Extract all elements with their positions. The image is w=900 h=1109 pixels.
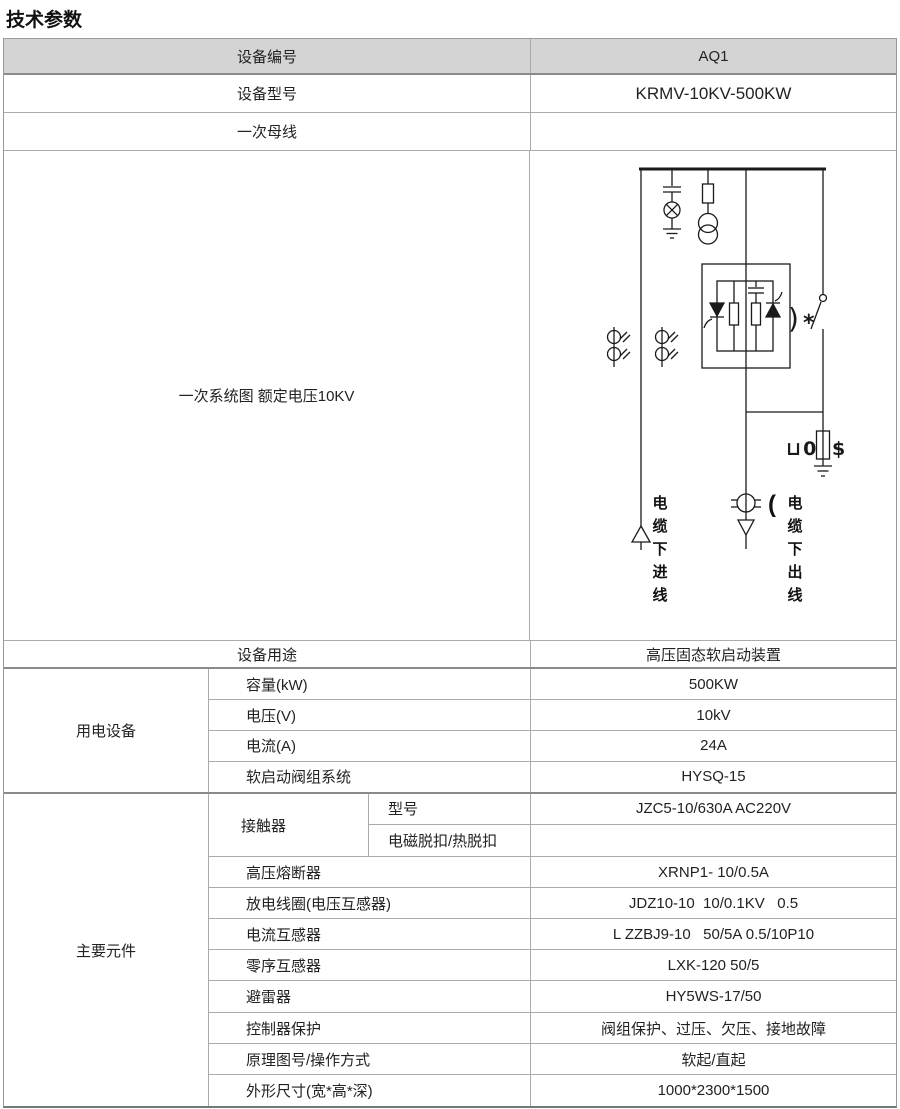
- ground-icon: [814, 466, 832, 476]
- row-value: 高压固态软启动装置: [531, 641, 896, 667]
- row-label: 一次母线: [4, 113, 531, 150]
- row-label: 电流(A): [209, 731, 531, 761]
- row-label: 零序互感器: [209, 950, 531, 980]
- row-value: 软起/直起: [531, 1044, 896, 1074]
- row-value: HYSQ-15: [531, 762, 896, 792]
- row-value: JDZ10-10 10/0.1KV 0.5: [531, 888, 896, 918]
- cable-outgoing-arrow-icon: [738, 520, 754, 535]
- row-value: 1000*2300*1500: [531, 1075, 896, 1106]
- row-value: LXK-120 50/5: [531, 950, 896, 980]
- table-row: 电压(V) 10kV: [209, 700, 896, 731]
- row-label: 接触器: [209, 794, 369, 856]
- row-label: 原理图号/操作方式: [209, 1044, 531, 1074]
- row-value: KRMV-10KV-500KW: [531, 75, 896, 112]
- row-value: 24A: [531, 731, 896, 761]
- table-row: 电流(A) 24A: [209, 731, 896, 762]
- fuse-icon: [703, 184, 714, 203]
- header-value: AQ1: [531, 39, 896, 73]
- thyristor-icon: [766, 304, 780, 317]
- row-label: 电压(V): [209, 700, 531, 730]
- group-label: 主要元件: [4, 794, 209, 1106]
- table-row: 电流互感器 L ZZBJ9-10 50/5A 0.5/10P10: [209, 919, 896, 950]
- row-label: 容量(kW): [209, 669, 531, 699]
- primary-system-diagram: ) * ⊔0 $ 电缆下进线 ( 电缆下出线: [530, 151, 896, 640]
- single-line-diagram-svg: ) * ⊔0 $: [530, 151, 896, 640]
- current-transformers: [608, 327, 679, 367]
- cable-incoming-arrow-icon: [632, 526, 650, 542]
- switch-paren-glyph: ): [788, 302, 799, 335]
- power-equipment-group: 用电设备 容量(kW) 500KW 电压(V) 10kV 电流(A) 24A 软…: [4, 669, 896, 794]
- row-value: JZC5-10/630A AC220V: [531, 794, 896, 824]
- row-label: 放电线圈(电压互感器): [209, 888, 531, 918]
- row-label: 控制器保护: [209, 1013, 531, 1043]
- arrester-right-glyph: $: [832, 438, 845, 460]
- row-label: 电流互感器: [209, 919, 531, 949]
- diagram-row: 一次系统图 额定电压10KV: [4, 151, 896, 641]
- switch-star-glyph: *: [803, 311, 815, 336]
- table-row: 一次母线: [4, 113, 896, 151]
- row-value: 10kV: [531, 700, 896, 730]
- table-row: 避雷器 HY5WS-17/50: [209, 981, 896, 1013]
- table-row: 高压熔断器 XRNP1- 10/0.5A: [209, 857, 896, 888]
- row-value: [531, 113, 896, 150]
- parameters-table: 设备编号 AQ1 设备型号 KRMV-10KV-500KW 一次母线 一次系统图…: [3, 38, 897, 1108]
- outgoing-paren: (: [768, 493, 776, 517]
- transformer-icon: [699, 214, 718, 233]
- table-row: 容量(kW) 500KW: [209, 669, 896, 700]
- main-components-group: 主要元件 接触器 型号 JZC5-10/630A AC220V 电磁脱扣/热脱扣: [4, 794, 896, 1106]
- row-label: 外形尺寸(宽*高*深): [209, 1075, 531, 1106]
- row-value: HY5WS-17/50: [531, 981, 896, 1012]
- table-row: 型号 JZC5-10/630A AC220V: [369, 794, 896, 825]
- ground-icon: [663, 229, 681, 238]
- technical-parameters-page: 技术参数 设备编号 AQ1 设备型号 KRMV-10KV-500KW 一次母线 …: [0, 0, 900, 1109]
- table-header-row: 设备编号 AQ1: [4, 39, 896, 75]
- contactor-subgroup: 接触器 型号 JZC5-10/630A AC220V 电磁脱扣/热脱扣: [209, 794, 896, 857]
- table-row: 原理图号/操作方式 软起/直起: [209, 1044, 896, 1075]
- thyristor-icon: [710, 303, 724, 316]
- row-label: 电磁脱扣/热脱扣: [369, 825, 531, 856]
- purpose-row: 设备用途 高压固态软启动装置: [4, 641, 896, 669]
- table-row: 电磁脱扣/热脱扣: [369, 825, 896, 856]
- row-label: 软启动阀组系统: [209, 762, 531, 792]
- row-label: 高压熔断器: [209, 857, 531, 887]
- group-label: 用电设备: [4, 669, 209, 792]
- incoming-feeder-line: [632, 169, 650, 550]
- cable-incoming-label: 电缆下进线: [651, 496, 669, 611]
- pt-fuse-branch: [699, 169, 718, 244]
- row-value: 500KW: [531, 669, 896, 699]
- table-row: 设备型号 KRMV-10KV-500KW: [4, 75, 896, 113]
- header-label: 设备编号: [4, 39, 531, 73]
- arrester-left-glyphs: ⊔0: [786, 438, 818, 460]
- row-label: 型号: [369, 794, 531, 824]
- cable-outgoing-label: 电缆下出线: [786, 496, 804, 611]
- row-value: [531, 825, 896, 856]
- table-row: 放电线圈(电压互感器) JDZ10-10 10/0.1KV 0.5: [209, 888, 896, 919]
- diagram-label: 一次系统图 额定电压10KV: [4, 151, 530, 640]
- resistor-icon: [730, 303, 739, 325]
- table-row: 外形尺寸(宽*高*深) 1000*2300*1500: [209, 1075, 896, 1106]
- row-value: L ZZBJ9-10 50/5A 0.5/10P10: [531, 919, 896, 949]
- page-title: 技术参数: [6, 5, 82, 32]
- cable-outgoing-symbol: [731, 494, 761, 549]
- row-label: 避雷器: [209, 981, 531, 1012]
- voltage-indicator-branch: [663, 169, 681, 238]
- table-row: 软启动阀组系统 HYSQ-15: [209, 762, 896, 792]
- table-row: 零序互感器 LXK-120 50/5: [209, 950, 896, 981]
- row-label: 设备型号: [4, 75, 531, 112]
- isolator-switch: [811, 169, 827, 412]
- table-row: 控制器保护 阀组保护、过压、欠压、接地故障: [209, 1013, 896, 1044]
- row-value: XRNP1- 10/0.5A: [531, 857, 896, 887]
- resistor-icon: [752, 303, 761, 325]
- row-value: 阀组保护、过压、欠压、接地故障: [531, 1013, 896, 1043]
- row-label: 设备用途: [4, 641, 531, 667]
